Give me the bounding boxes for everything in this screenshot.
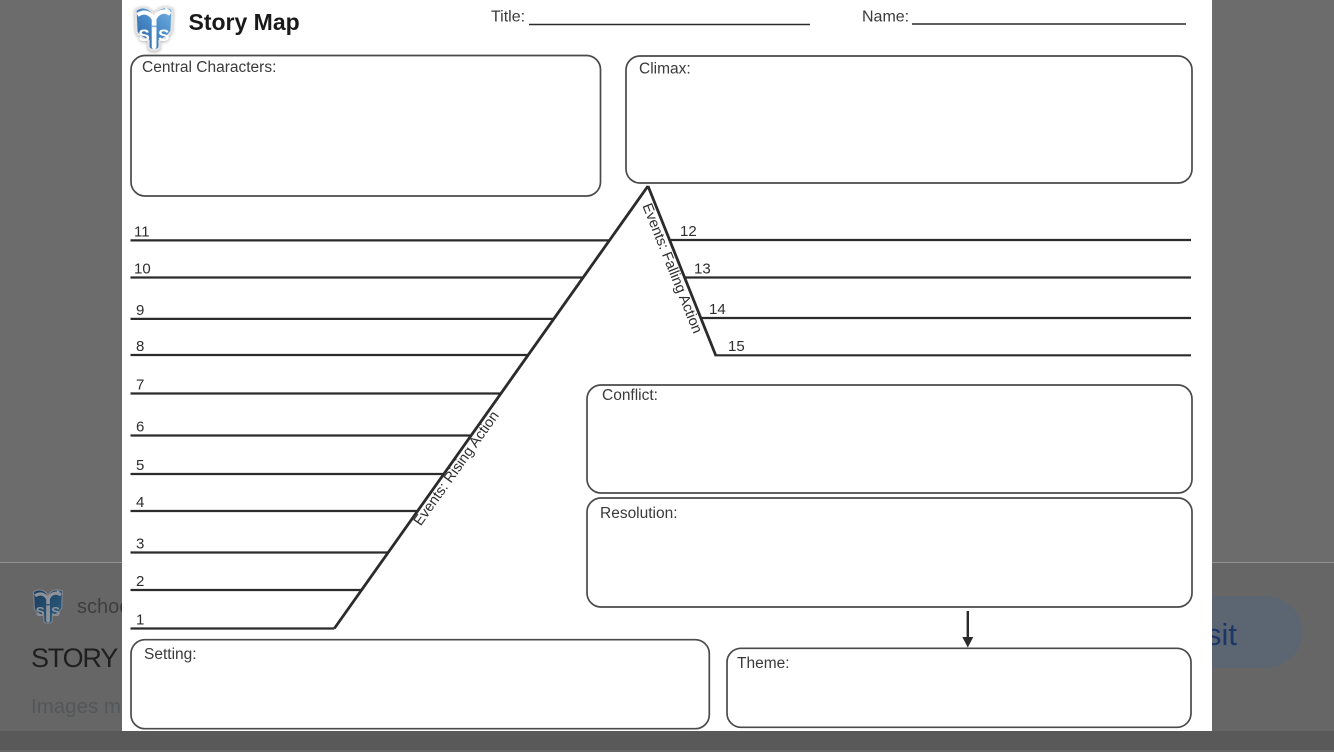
svg-text:Story Map: Story Map xyxy=(189,9,300,35)
svg-text:Setting:: Setting: xyxy=(144,646,197,663)
svg-text:Events: Rising Action: Events: Rising Action xyxy=(411,408,503,528)
svg-text:Resolution:: Resolution: xyxy=(600,505,678,522)
svg-text:15: 15 xyxy=(728,338,745,355)
svg-text:14: 14 xyxy=(709,301,726,318)
svg-text:8: 8 xyxy=(136,338,144,355)
svg-text:5: 5 xyxy=(136,457,144,474)
svg-text:11: 11 xyxy=(134,224,150,241)
svg-text:10: 10 xyxy=(134,261,151,278)
svg-text:7: 7 xyxy=(136,377,144,394)
svg-text:1: 1 xyxy=(136,612,144,629)
svg-text:3: 3 xyxy=(136,536,144,553)
svg-text:13: 13 xyxy=(694,261,711,278)
svg-text:9: 9 xyxy=(136,302,144,319)
svg-text:2: 2 xyxy=(136,573,144,590)
svg-text:Climax:: Climax: xyxy=(639,61,691,78)
svg-text:Title:: Title: xyxy=(491,9,525,26)
svg-text:S: S xyxy=(51,604,60,619)
svg-text:12: 12 xyxy=(680,223,697,240)
svg-text:Conflict:: Conflict: xyxy=(602,387,658,404)
svg-text:Name:: Name: xyxy=(862,9,909,26)
svg-text:S: S xyxy=(36,604,45,619)
svg-text:Central Characters:: Central Characters: xyxy=(142,59,276,76)
svg-text:Theme:: Theme: xyxy=(737,655,790,672)
svg-text:4: 4 xyxy=(136,494,144,511)
svg-text:6: 6 xyxy=(136,419,144,436)
